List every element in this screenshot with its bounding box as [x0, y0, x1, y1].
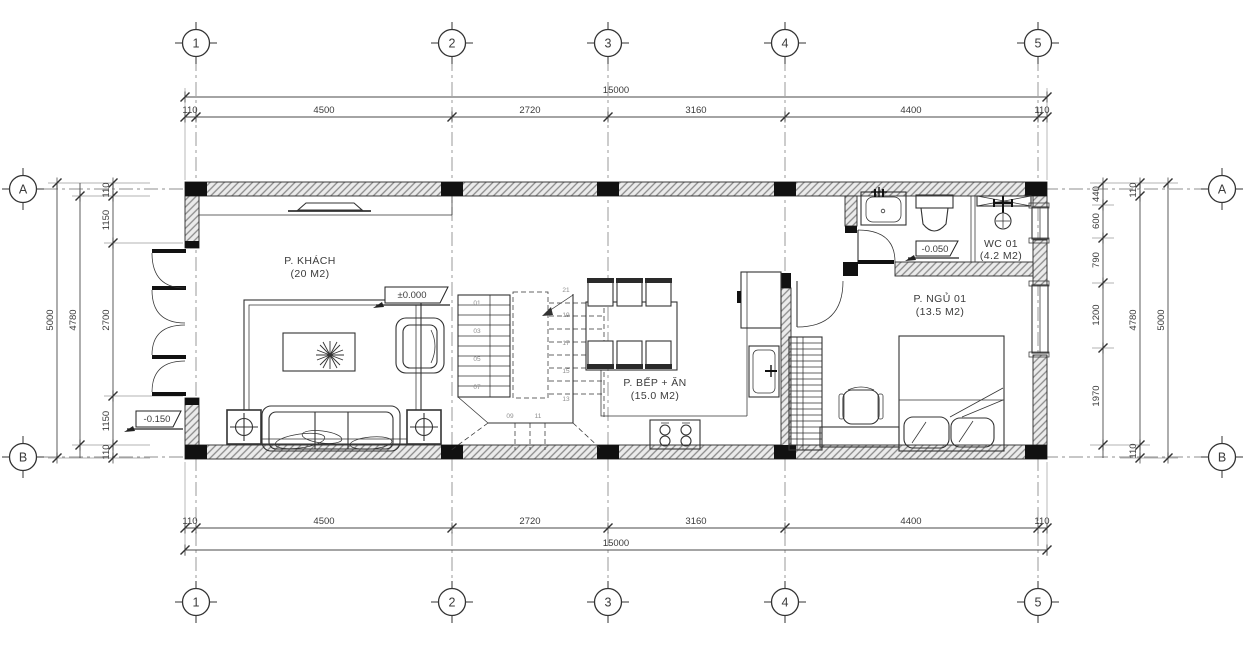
dining-chair — [616, 278, 643, 306]
window-right-lower — [1029, 281, 1049, 357]
svg-text:110: 110 — [1034, 516, 1049, 527]
kitchen-sink — [749, 346, 779, 397]
desk — [820, 427, 899, 447]
dimension-right: 440 600 790 1200 1970 110 4780 110 5000 — [1090, 178, 1178, 464]
dining-chair — [587, 278, 614, 306]
svg-text:790: 790 — [1091, 252, 1102, 268]
svg-text:15: 15 — [562, 368, 570, 375]
svg-text:600: 600 — [1091, 213, 1102, 229]
svg-text:1200: 1200 — [1091, 304, 1102, 325]
coffee-table — [283, 333, 355, 371]
svg-text:5000: 5000 — [1156, 309, 1167, 330]
svg-text:110: 110 — [182, 105, 197, 116]
svg-text:110: 110 — [182, 516, 197, 527]
svg-text:01: 01 — [473, 300, 481, 307]
bedroom-label: P. NGỦ 01 — [913, 292, 966, 305]
floor-plan-canvas: 15000 110 4500 2720 3160 4400 110 110 45… — [0, 0, 1250, 649]
tv-icon — [288, 203, 371, 211]
wc-door — [858, 230, 895, 264]
grid-bubble-1-top: 1 — [193, 37, 200, 51]
dimension-bottom: 110 4500 2720 3160 4400 110 15000 — [181, 462, 1052, 556]
svg-text:5000: 5000 — [45, 309, 56, 330]
wall-wc-west — [845, 196, 857, 226]
svg-text:11: 11 — [535, 413, 542, 420]
svg-text:110: 110 — [101, 444, 112, 459]
grid-bubble-B-right: B — [1218, 451, 1226, 465]
dim-bottom-overall: 15000 — [603, 538, 629, 549]
svg-text:05: 05 — [473, 356, 481, 363]
grid-bubble-5-bottom: 5 — [1035, 596, 1042, 610]
stair-direction-arrow — [542, 307, 553, 316]
grid-bubble-3-top: 3 — [605, 37, 612, 51]
svg-text:4780: 4780 — [68, 309, 79, 330]
bedroom — [789, 336, 1004, 451]
svg-text:110: 110 — [1128, 182, 1139, 197]
grid-bubble-5-top: 5 — [1035, 37, 1042, 51]
svg-text:110: 110 — [101, 182, 112, 197]
wc-area: (4.2 M2) — [980, 250, 1022, 262]
svg-text:19: 19 — [562, 312, 570, 319]
grid-bubble-3-bottom: 3 — [605, 596, 612, 610]
svg-text:110: 110 — [1034, 105, 1049, 116]
stairs: 01 03 05 07 09 11 13 15 17 19 21 — [450, 287, 604, 451]
level-marker-living: ±0.000 — [373, 287, 450, 308]
toilet-icon — [916, 195, 953, 231]
svg-text:2700: 2700 — [101, 309, 112, 330]
living-room-label: P. KHÁCH — [284, 254, 335, 267]
svg-text:±0.000: ±0.000 — [398, 290, 427, 301]
grid-bubble-1-bottom: 1 — [193, 596, 200, 610]
wall-left-upper — [185, 196, 199, 248]
entrance-folding-door — [152, 249, 186, 396]
svg-text:1970: 1970 — [1091, 385, 1102, 406]
wall-right-2 — [1033, 240, 1047, 285]
dining-chair — [587, 341, 614, 369]
svg-text:2720: 2720 — [519, 105, 540, 116]
living-room — [199, 196, 452, 451]
bedroom-area: (13.5 M2) — [916, 306, 965, 318]
living-room-area: (20 M2) — [291, 268, 330, 280]
wall-left-lower — [185, 398, 199, 445]
svg-text:21: 21 — [562, 287, 570, 294]
pillow — [904, 417, 949, 448]
desk-chair — [839, 387, 883, 424]
level-marker-wc: -0.050 — [905, 241, 959, 261]
window-right-upper — [1029, 203, 1049, 243]
svg-text:3160: 3160 — [685, 516, 706, 527]
grid-bubble-2-bottom: 2 — [449, 596, 456, 610]
kitchen-label: P. BẾP + ĂN — [623, 376, 686, 389]
svg-text:07: 07 — [473, 384, 481, 391]
svg-text:4400: 4400 — [900, 516, 921, 527]
kitchen-cabinet — [737, 272, 781, 328]
svg-text:1150: 1150 — [101, 411, 112, 431]
kitchen-dining — [586, 272, 781, 449]
grid-bubble-A-left: A — [19, 183, 28, 197]
wall-right-1 — [1033, 196, 1047, 207]
grid-bubble-A-right: A — [1218, 183, 1227, 197]
wall-right-3 — [1033, 355, 1047, 445]
armchair — [396, 318, 444, 373]
grid-bubble-B-left: B — [19, 451, 27, 465]
svg-text:1150: 1150 — [101, 210, 112, 230]
svg-text:4780: 4780 — [1128, 309, 1139, 330]
svg-text:4400: 4400 — [900, 105, 921, 116]
svg-text:09: 09 — [506, 413, 514, 420]
svg-text:2720: 2720 — [519, 516, 540, 527]
grid-bubble-2-top: 2 — [449, 37, 456, 51]
plant-icon — [316, 341, 344, 369]
bedroom-door — [797, 281, 843, 327]
wall-wc-south — [895, 262, 1033, 276]
shower-icon — [994, 196, 1012, 229]
bed — [899, 336, 1004, 451]
svg-text:03: 03 — [473, 328, 481, 335]
side-table-left — [227, 410, 261, 444]
svg-text:440: 440 — [1091, 186, 1102, 202]
svg-text:4500: 4500 — [313, 105, 334, 116]
wardrobe — [789, 337, 822, 450]
dimension-top: 15000 110 4500 2720 3160 4400 110 — [181, 85, 1052, 180]
side-table-right — [407, 410, 441, 444]
kitchen-area: (15.0 M2) — [631, 390, 680, 402]
svg-text:13: 13 — [562, 396, 570, 403]
dining-chair — [616, 341, 643, 369]
dining-chair — [645, 341, 672, 369]
grid-bubble-4-bottom: 4 — [782, 596, 789, 610]
grid-lines — [44, 57, 1201, 588]
svg-text:3160: 3160 — [685, 105, 706, 116]
svg-text:-0.150: -0.150 — [144, 414, 171, 425]
grid-bubble-4-top: 4 — [782, 37, 789, 51]
dining-chair — [645, 278, 672, 306]
svg-text:4500: 4500 — [313, 516, 334, 527]
rug — [244, 300, 421, 444]
svg-text:110: 110 — [1128, 443, 1139, 458]
svg-text:17: 17 — [562, 340, 570, 347]
floor-plan-svg: 15000 110 4500 2720 3160 4400 110 110 45… — [0, 0, 1250, 649]
level-marker-entry: -0.150 — [124, 411, 183, 432]
wc-label: WC 01 — [984, 238, 1018, 250]
dim-top-overall: 15000 — [603, 85, 629, 96]
svg-text:-0.050: -0.050 — [922, 244, 949, 255]
